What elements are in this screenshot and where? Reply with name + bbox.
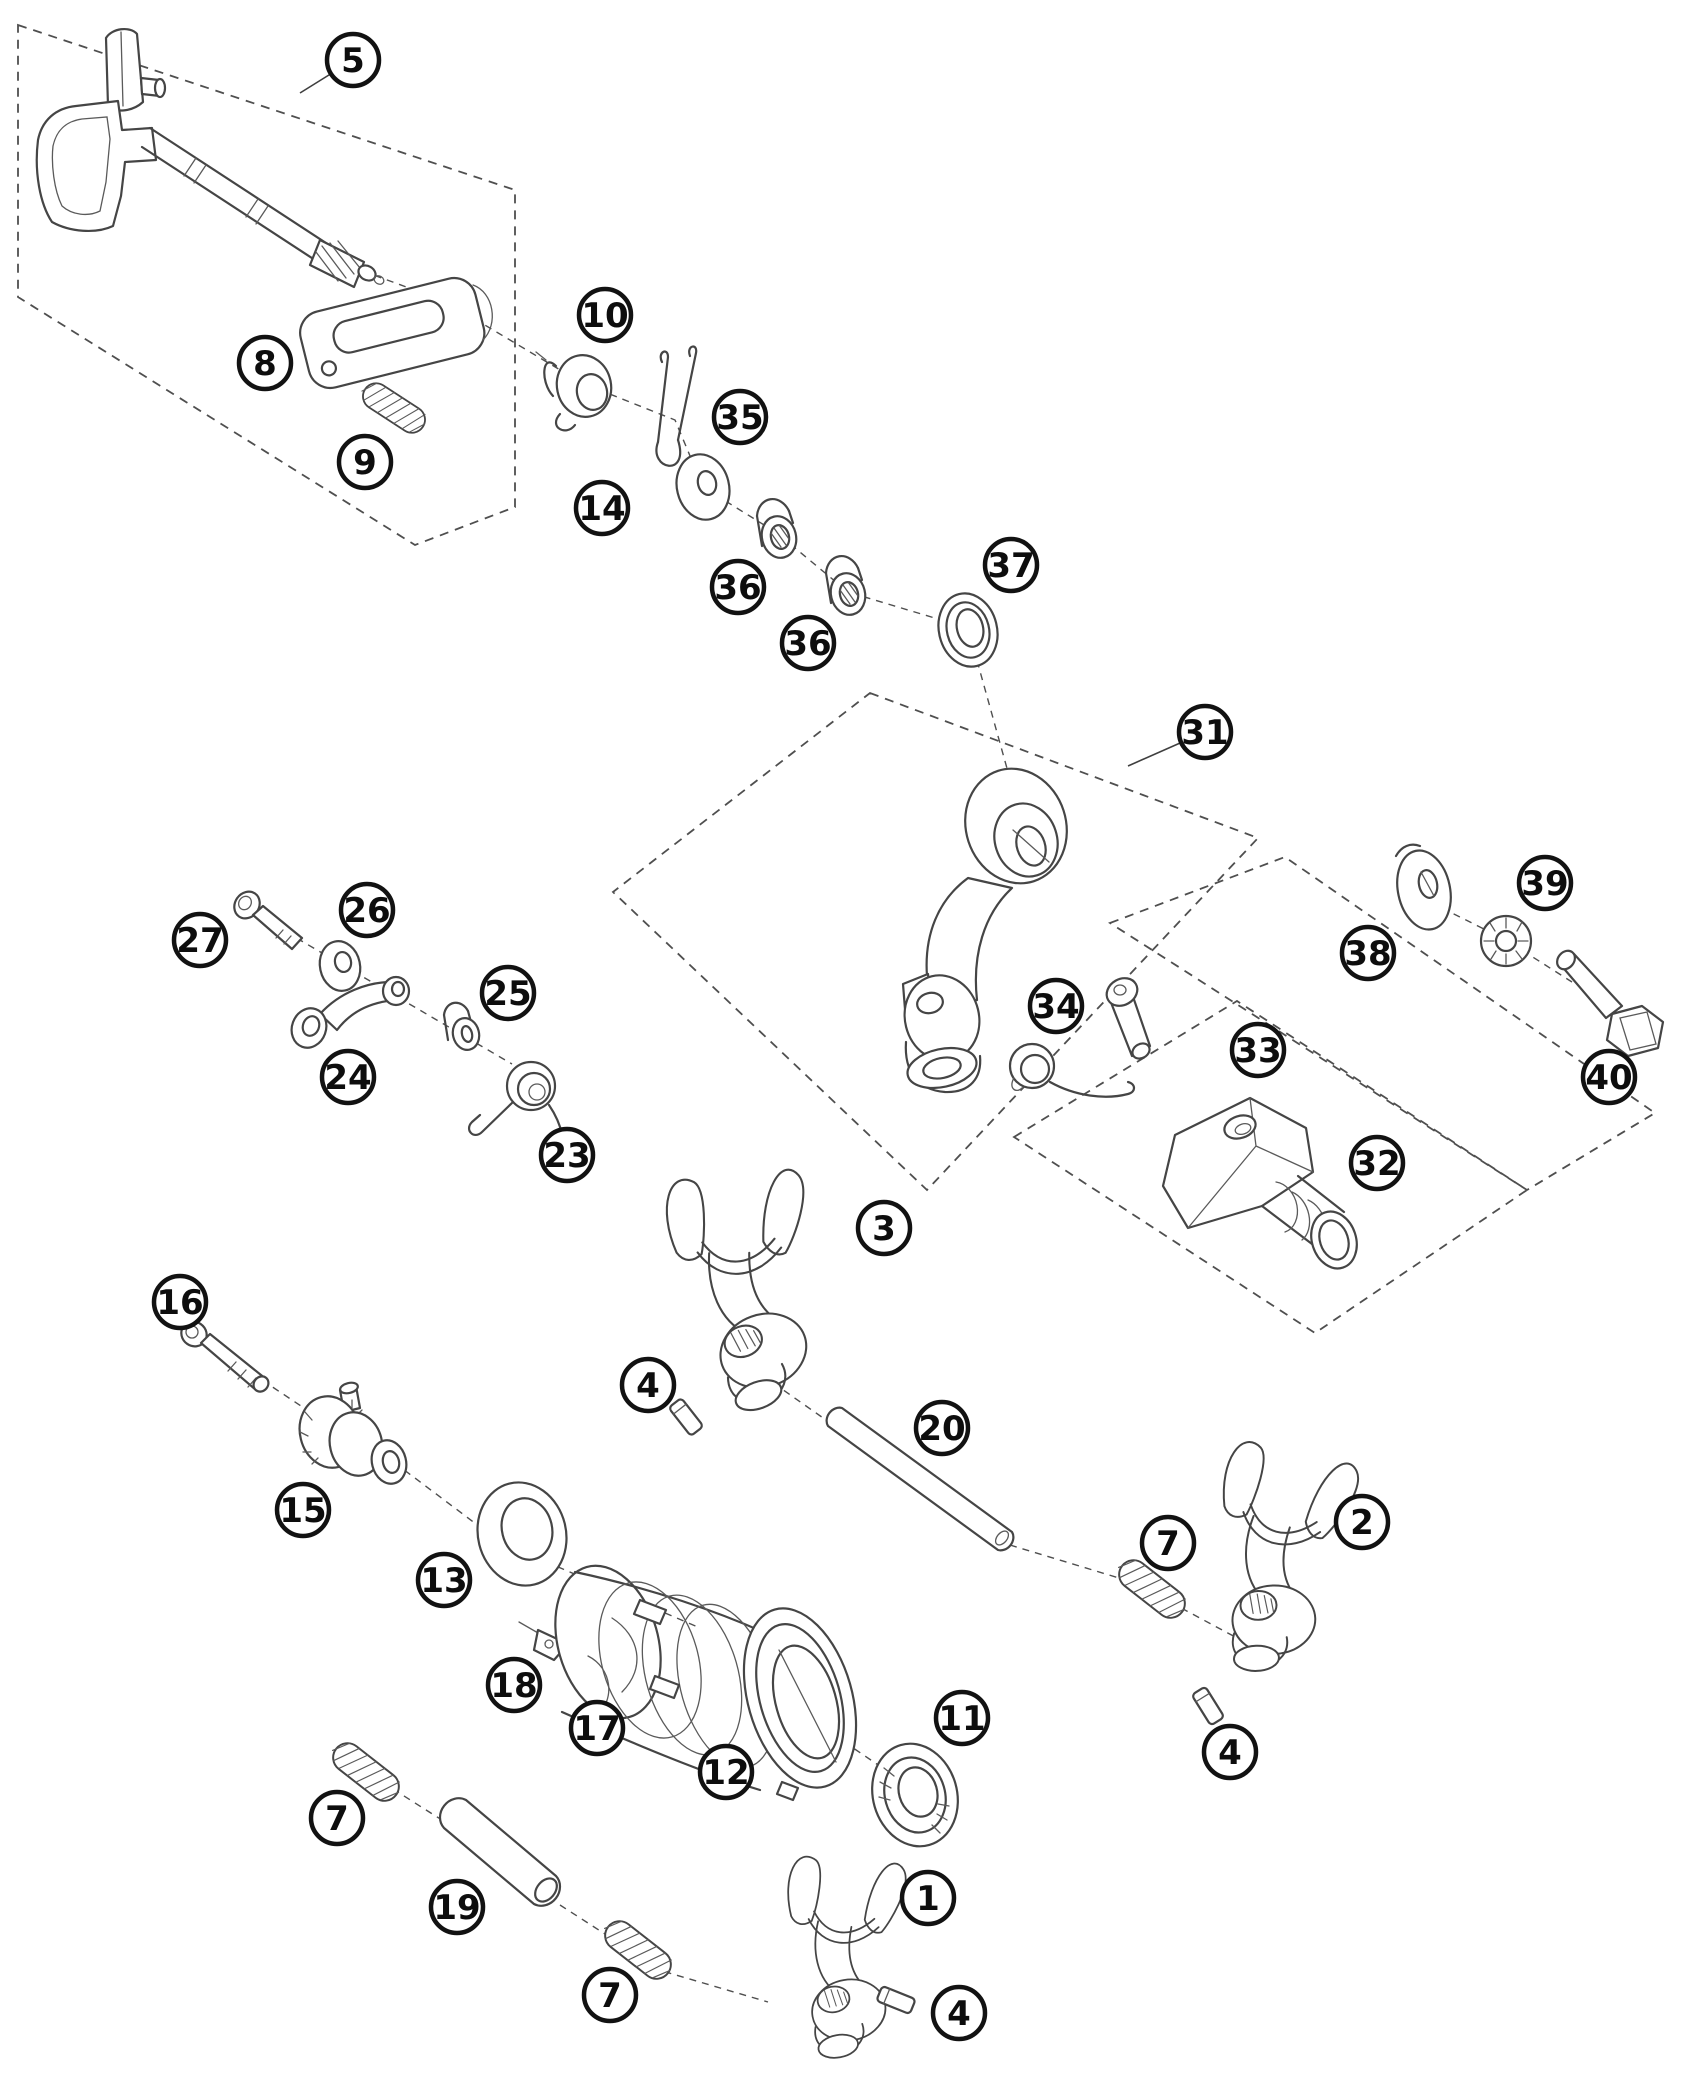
callout-number-15: 15 [279, 1491, 326, 1531]
callout-number-10: 10 [581, 296, 628, 336]
callout-4: 4 [933, 1987, 985, 2039]
callout-37: 37 [985, 539, 1037, 591]
callout-3: 3 [858, 1202, 910, 1254]
part-seal-ring-37 [931, 587, 1005, 673]
part-bolt-40 [1553, 947, 1663, 1056]
callout-number-39: 39 [1521, 864, 1568, 904]
callout-33: 33 [1232, 1024, 1284, 1076]
callout-number-8: 8 [253, 344, 277, 384]
callout-12: 12 [700, 1746, 752, 1798]
callout-34: 34 [1030, 980, 1082, 1032]
callout-7: 7 [1142, 1517, 1194, 1569]
callout-number-24: 24 [324, 1058, 371, 1098]
part-bearing-11 [860, 1733, 969, 1856]
callout-25: 25 [482, 967, 534, 1019]
parts-diagram-page: 5891014353636373127262524233839403334323… [0, 0, 1700, 2079]
callout-number-18: 18 [490, 1666, 537, 1706]
callout-26: 26 [341, 884, 393, 936]
callout-4: 4 [622, 1359, 674, 1411]
part-shift-lever-31 [896, 755, 1082, 1093]
callout-5: 5 [300, 34, 379, 93]
callout-13: 13 [418, 1554, 470, 1606]
callout-number-32: 32 [1353, 1144, 1400, 1184]
callout-number-20: 20 [918, 1409, 965, 1449]
part-bolt-16 [176, 1317, 271, 1395]
callout-number-33: 33 [1234, 1031, 1281, 1071]
part-bushing-36b [826, 556, 870, 618]
callout-15: 15 [277, 1484, 329, 1536]
part-bolt-33 [1102, 973, 1153, 1062]
callout-number-35: 35 [716, 398, 763, 438]
part-washer-38 [1390, 845, 1457, 935]
callout-7: 7 [584, 1969, 636, 2021]
part-roller-25 [444, 1003, 482, 1053]
part-clip-14 [656, 347, 696, 466]
callout-4: 4 [1204, 1726, 1256, 1778]
callout-number-7: 7 [325, 1799, 349, 1839]
part-shift-fork-2 [1186, 1438, 1362, 1688]
axis-line-7 [652, 1968, 768, 2002]
part-washer-26 [315, 937, 365, 994]
callout-2: 2 [1336, 1496, 1388, 1548]
callout-24: 24 [322, 1051, 374, 1103]
callout-number-14: 14 [578, 489, 625, 529]
part-index-lever-15 [292, 1381, 411, 1487]
callout-number-16: 16 [156, 1283, 203, 1323]
callout-23: 23 [541, 1129, 593, 1181]
callout-number-13: 13 [420, 1561, 467, 1601]
part-bushing-36a [757, 499, 801, 561]
callout-18: 18 [488, 1659, 540, 1711]
callout-31: 31 [1128, 706, 1231, 766]
callout-number-38: 38 [1344, 934, 1391, 974]
part-bolt-27 [229, 887, 302, 949]
callout-number-27: 27 [176, 921, 223, 961]
callout-19: 19 [431, 1881, 483, 1933]
callout-40: 40 [1583, 1051, 1635, 1103]
callout-number-25: 25 [484, 974, 531, 1014]
callout-number-11: 11 [938, 1699, 985, 1739]
callout-39: 39 [1519, 857, 1571, 909]
callout-number-17: 17 [573, 1709, 620, 1749]
callout-36: 36 [712, 561, 764, 613]
callout-number-26: 26 [343, 891, 390, 931]
callout-1: 1 [902, 1872, 954, 1924]
callout-36: 36 [782, 617, 834, 669]
callout-9: 9 [339, 436, 391, 488]
part-shift-fork-3 [663, 1167, 826, 1421]
callout-number-4: 4 [636, 1366, 660, 1406]
callout-number-40: 40 [1585, 1058, 1632, 1098]
callout-number-19: 19 [433, 1888, 480, 1928]
callout-11: 11 [936, 1692, 988, 1744]
part-pin-4b [1192, 1686, 1225, 1725]
group-boxes-layer [18, 25, 1655, 1333]
part-torsion-spring-34 [1010, 1044, 1134, 1097]
callout-32: 32 [1351, 1137, 1403, 1189]
part-roller-10 [536, 350, 617, 430]
callout-number-12: 12 [702, 1753, 749, 1793]
part-pin-4a [669, 1398, 704, 1436]
callout-number-9: 9 [353, 443, 377, 483]
callout-35: 35 [714, 391, 766, 443]
callout-17: 17 [571, 1702, 623, 1754]
callout-number-36: 36 [784, 624, 831, 664]
callout-20: 20 [916, 1402, 968, 1454]
part-shift-fork-1 [776, 1855, 906, 2065]
callout-number-34: 34 [1032, 987, 1079, 1027]
callout-8: 8 [239, 337, 291, 389]
callout-number-31: 31 [1181, 713, 1228, 753]
callout-number-36: 36 [714, 568, 761, 608]
callout-14: 14 [576, 482, 628, 534]
callout-7: 7 [311, 1792, 363, 1844]
part-shift-rubber-32 [1163, 1098, 1364, 1274]
callout-number-1: 1 [916, 1879, 940, 1919]
parts-layer [37, 29, 1663, 2066]
axis-lines-layer [208, 262, 1572, 2002]
callout-number-4: 4 [1218, 1733, 1242, 1773]
callout-number-37: 37 [987, 546, 1034, 586]
callout-number-4: 4 [947, 1994, 971, 2034]
callout-number-23: 23 [543, 1136, 590, 1176]
callout-number-3: 3 [872, 1209, 896, 1249]
part-washer-13 [467, 1473, 578, 1595]
callout-38: 38 [1342, 927, 1394, 979]
callout-number-7: 7 [1156, 1524, 1180, 1564]
parts-diagram-canvas: 5891014353636373127262524233839403334323… [0, 0, 1700, 2079]
part-lock-washer-39 [1481, 916, 1531, 966]
part-stop-plate-8 [295, 270, 500, 392]
callout-number-5: 5 [341, 41, 365, 81]
callout-16: 16 [154, 1276, 206, 1328]
callout-number-7: 7 [598, 1976, 622, 2016]
part-spring-9 [357, 377, 430, 437]
callout-10: 10 [579, 289, 631, 341]
callout-27: 27 [174, 914, 226, 966]
callout-number-2: 2 [1350, 1503, 1374, 1543]
